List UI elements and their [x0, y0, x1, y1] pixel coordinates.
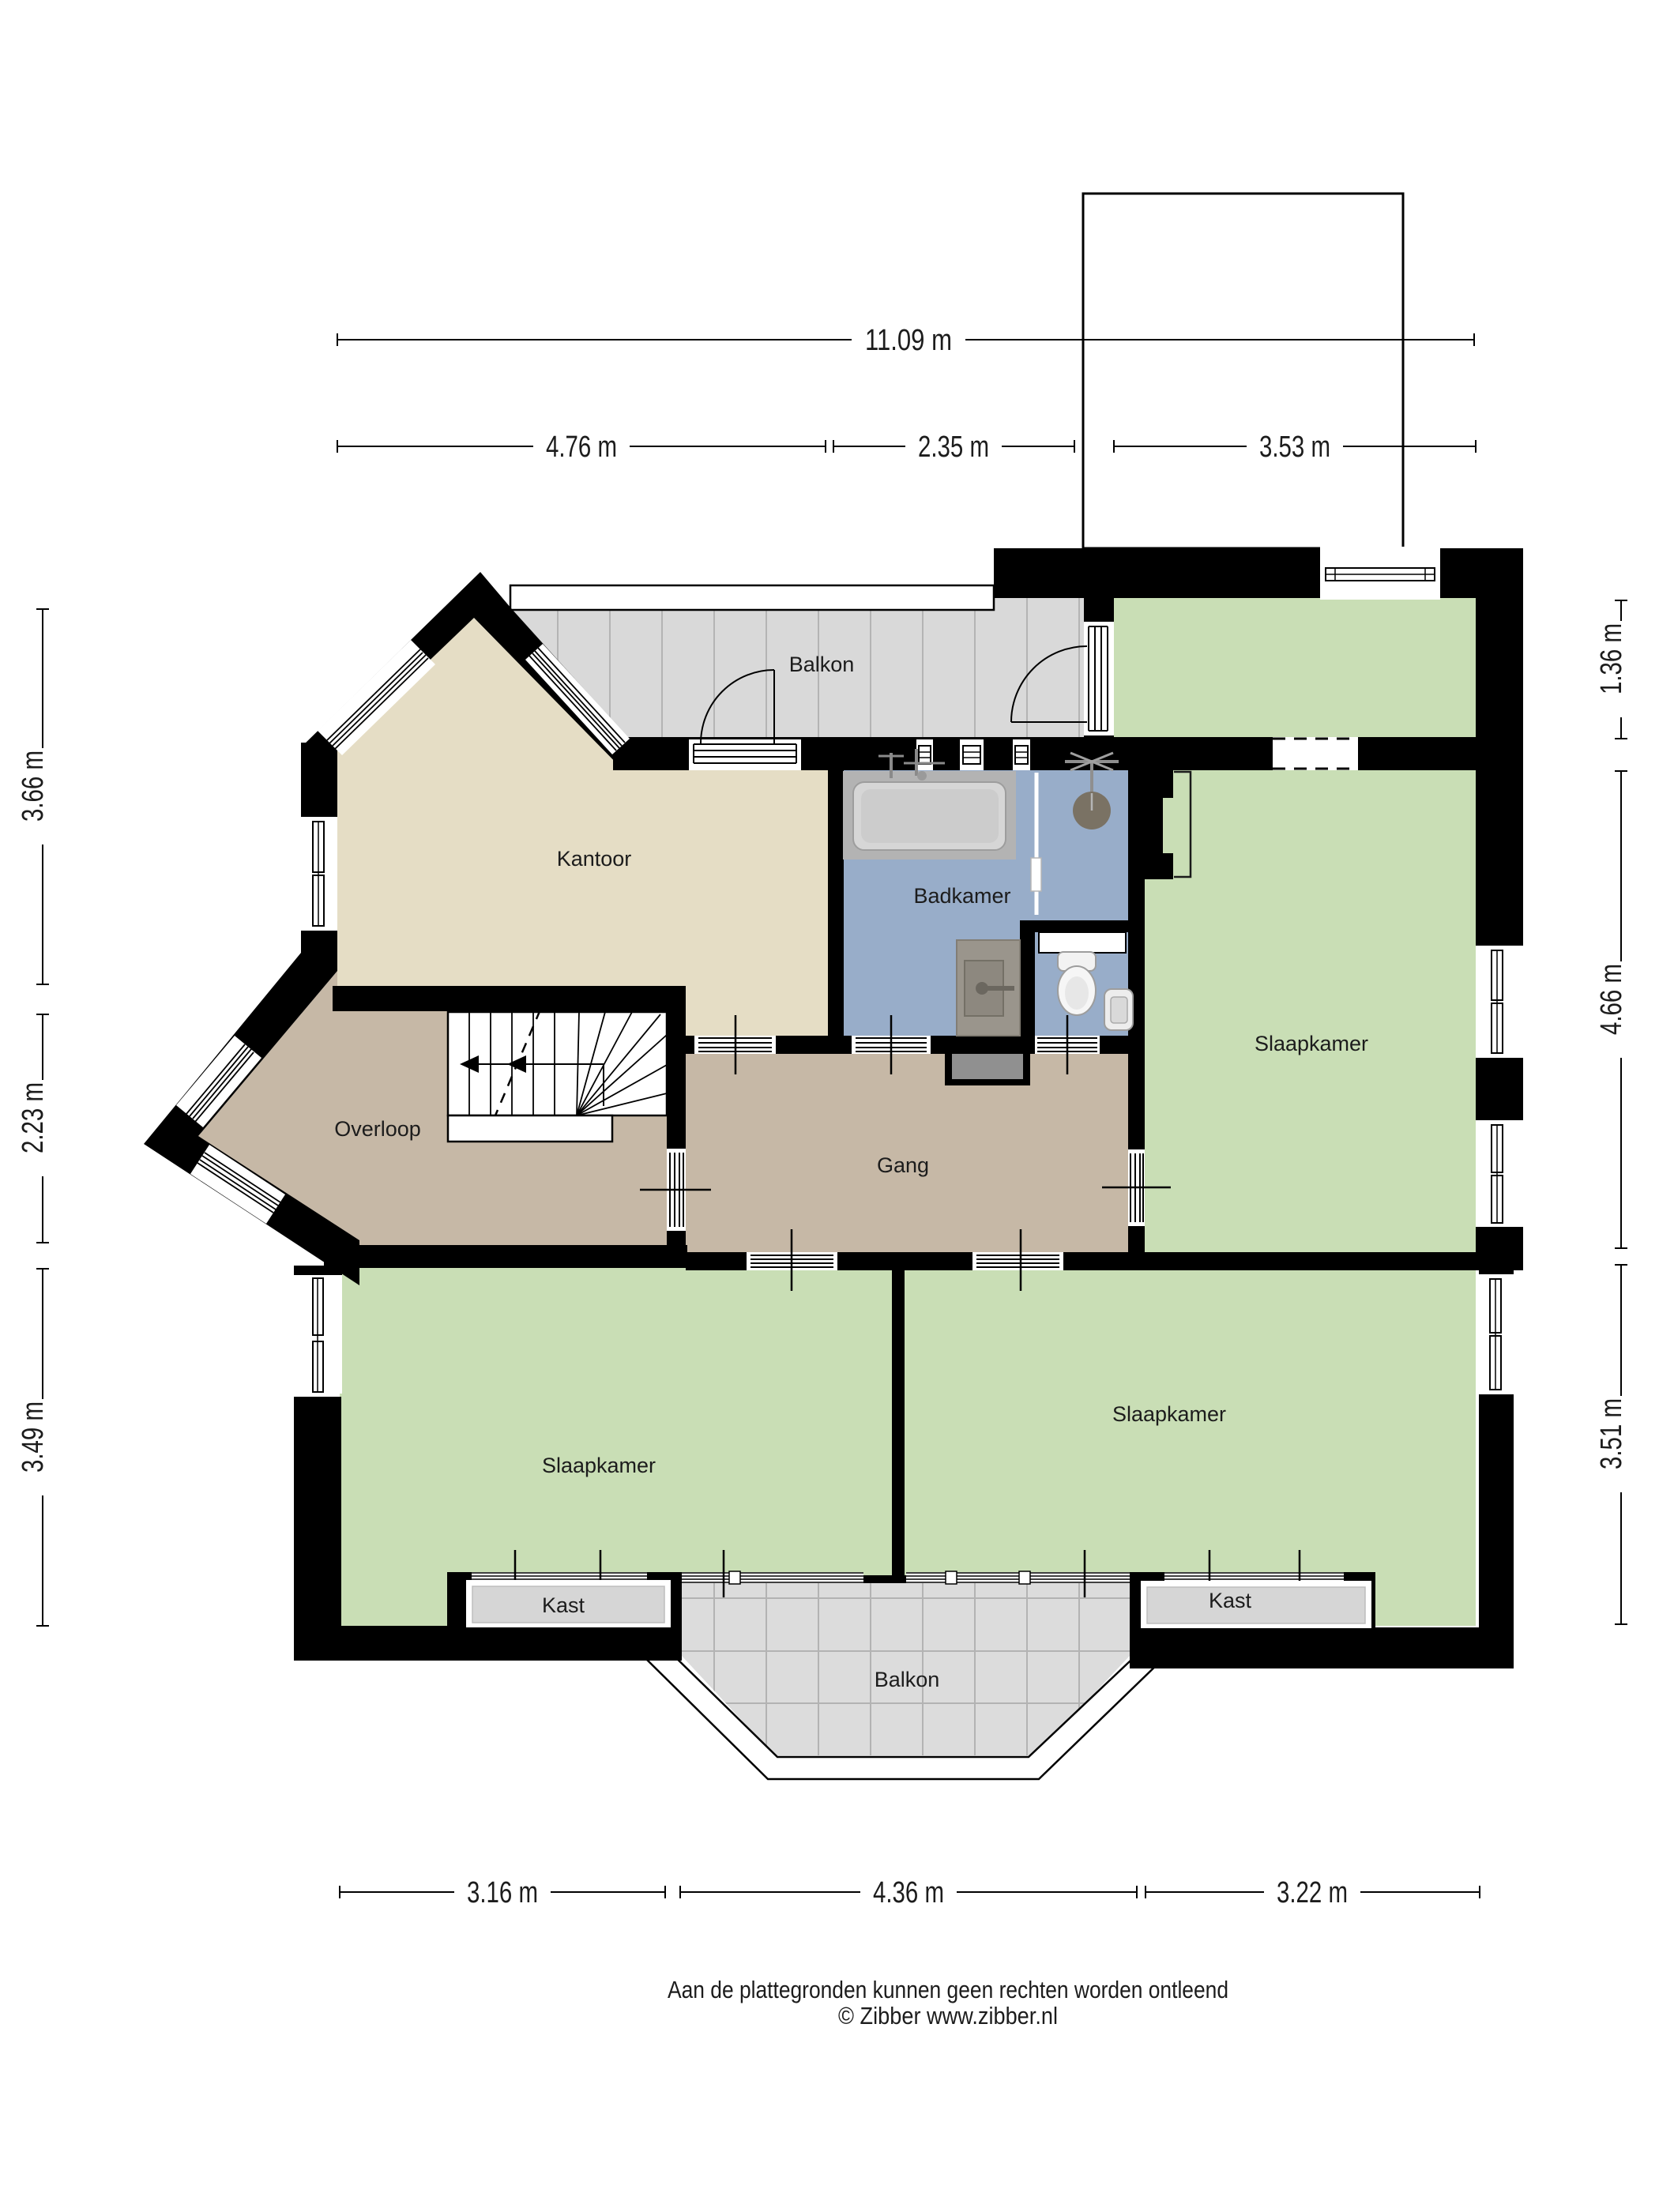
svg-text:4.66 m: 4.66 m — [1595, 964, 1628, 1035]
svg-text:4.36 m: 4.36 m — [873, 1876, 944, 1909]
svg-text:3.51 m: 3.51 m — [1595, 1398, 1628, 1469]
svg-text:3.53 m: 3.53 m — [1259, 431, 1330, 464]
svg-text:3.66 m: 3.66 m — [17, 750, 50, 822]
svg-text:2.23 m: 2.23 m — [17, 1082, 50, 1153]
svg-text:3.16 m: 3.16 m — [467, 1876, 538, 1909]
svg-text:2.35 m: 2.35 m — [918, 431, 989, 464]
svg-text:Overloop: Overloop — [334, 1117, 421, 1141]
svg-text:3.49 m: 3.49 m — [17, 1401, 50, 1473]
svg-text:Balkon: Balkon — [789, 653, 855, 676]
svg-text:Kast: Kast — [1209, 1589, 1252, 1612]
svg-text:Gang: Gang — [877, 1153, 929, 1177]
svg-text:Badkamer: Badkamer — [913, 884, 1010, 908]
svg-text:3.22 m: 3.22 m — [1277, 1876, 1348, 1909]
svg-text:11.09 m: 11.09 m — [865, 324, 952, 357]
svg-text:Slaapkamer: Slaapkamer — [542, 1454, 656, 1477]
svg-text:Slaapkamer: Slaapkamer — [1112, 1402, 1226, 1426]
svg-text:Balkon: Balkon — [875, 1668, 940, 1691]
svg-text:4.76 m: 4.76 m — [546, 431, 617, 464]
svg-text:Slaapkamer: Slaapkamer — [1255, 1032, 1368, 1055]
svg-text:© Zibber www.zibber.nl: © Zibber www.zibber.nl — [838, 2002, 1058, 2030]
svg-text:Kantoor: Kantoor — [557, 847, 632, 871]
svg-text:Aan de plattegronden kunnen ge: Aan de plattegronden kunnen geen rechten… — [668, 1976, 1228, 2003]
svg-text:Kast: Kast — [542, 1593, 585, 1617]
svg-text:1.36 m: 1.36 m — [1595, 623, 1628, 694]
